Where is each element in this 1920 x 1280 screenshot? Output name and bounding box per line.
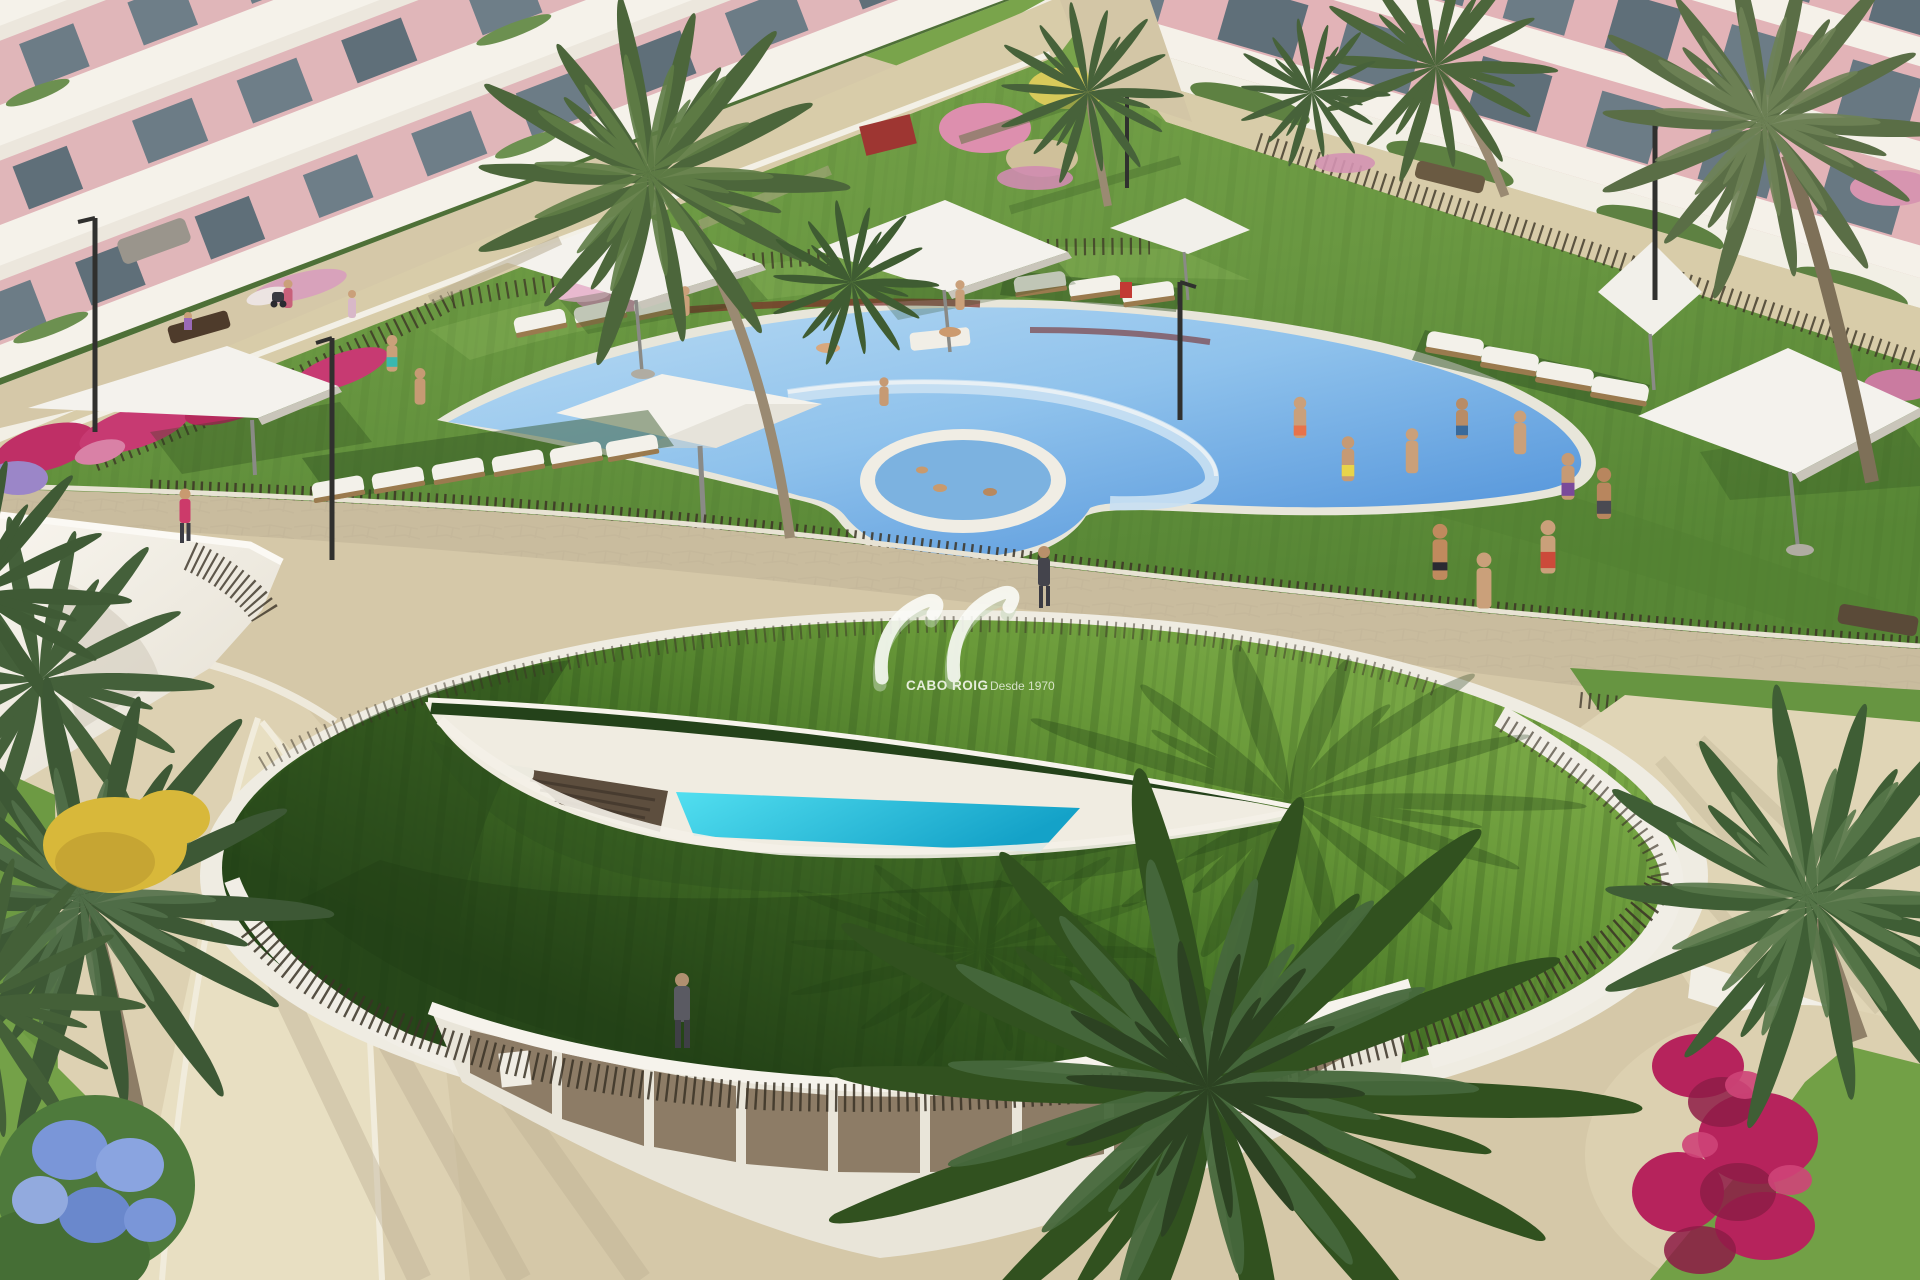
svg-text:CABO ROIG: CABO ROIG: [906, 678, 989, 693]
svg-text:Desde 1970: Desde 1970: [990, 679, 1055, 693]
